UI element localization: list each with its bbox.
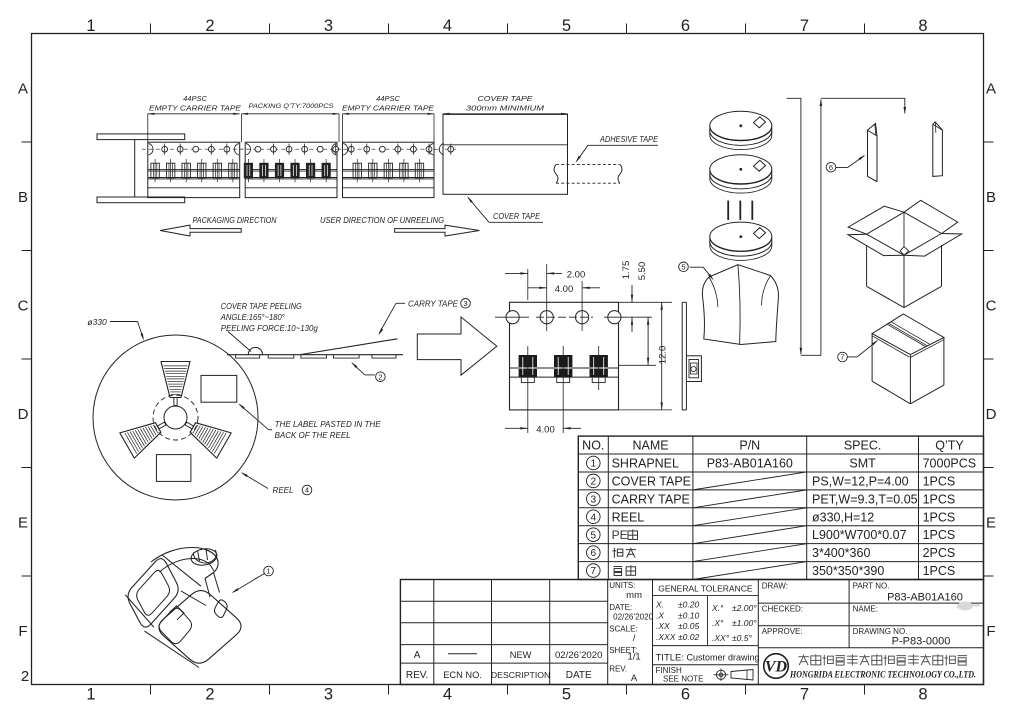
svg-text:E: E — [986, 515, 996, 532]
svg-text:4: 4 — [443, 17, 452, 35]
svg-text:REEL: REEL — [273, 486, 294, 495]
svg-text:1/1: 1/1 — [627, 652, 640, 663]
svg-text:CARRY TAPE: CARRY TAPE — [612, 492, 690, 506]
svg-text:Customer drawing: Customer drawing — [687, 653, 760, 664]
svg-text:4.00: 4.00 — [536, 424, 555, 435]
svg-text:NAME: NAME — [633, 439, 669, 453]
svg-text:THE LABEL PASTED IN THE: THE LABEL PASTED IN THE — [275, 420, 382, 429]
svg-text:SCALE:: SCALE: — [609, 624, 637, 633]
svg-text:EMPTY CARRIER TAPE: EMPTY CARRIER TAPE — [342, 104, 435, 113]
svg-text:PACKAGING DIRECTION: PACKAGING DIRECTION — [193, 216, 277, 225]
svg-text:5.50: 5.50 — [637, 262, 648, 281]
svg-text:REV.: REV. — [609, 665, 627, 674]
svg-text:ANGLE:165°~180°: ANGLE:165°~180° — [220, 313, 286, 322]
svg-text:12.0: 12.0 — [658, 346, 669, 365]
svg-text:PET,W=9.3,T=0.05: PET,W=9.3,T=0.05 — [812, 492, 918, 506]
svg-text:DATE: DATE — [566, 670, 592, 681]
svg-text:NEW: NEW — [510, 650, 532, 660]
svg-text:1: 1 — [86, 686, 95, 704]
svg-text:1PCS: 1PCS — [923, 492, 956, 506]
svg-text:3: 3 — [591, 494, 597, 505]
svg-text:1PCS: 1PCS — [923, 474, 956, 488]
svg-text:F: F — [986, 623, 995, 640]
svg-text:PART NO.: PART NO. — [853, 581, 890, 590]
svg-text:COVER TAPE: COVER TAPE — [478, 94, 534, 103]
svg-text:A: A — [986, 81, 996, 98]
svg-text:5: 5 — [591, 530, 597, 541]
svg-text:7: 7 — [800, 17, 809, 35]
svg-text:3: 3 — [324, 17, 333, 35]
svg-text:±0.20: ±0.20 — [678, 600, 699, 610]
svg-text:REEL: REEL — [612, 510, 645, 524]
svg-text:ADHESIVE TAPE: ADHESIVE TAPE — [599, 135, 659, 144]
svg-text:DRAW:: DRAW: — [762, 581, 788, 590]
svg-text:2: 2 — [21, 668, 29, 685]
svg-text:±0.5°: ±0.5° — [732, 633, 752, 643]
svg-text:7000PCS: 7000PCS — [923, 456, 977, 470]
svg-text:/: / — [633, 633, 636, 644]
svg-text:CHECKED:: CHECKED: — [762, 605, 803, 614]
svg-text:PACKING Q’TY:7000PCS: PACKING Q’TY:7000PCS — [249, 103, 334, 110]
svg-text:P/N: P/N — [739, 439, 760, 453]
svg-text:±0.10: ±0.10 — [678, 610, 699, 620]
svg-text:3: 3 — [324, 686, 333, 704]
svg-text:Q’TY: Q’TY — [935, 439, 964, 453]
svg-text:B: B — [18, 189, 28, 206]
svg-text:mm: mm — [626, 590, 642, 601]
svg-text:44PSC: 44PSC — [183, 94, 207, 103]
svg-text:DESCRIPTION: DESCRIPTION — [491, 670, 550, 680]
svg-text:6: 6 — [681, 686, 690, 704]
svg-text:HONGRIDA ELECTRONIC TECHNOLOGY: HONGRIDA ELECTRONIC TECHNOLOGY CO.,LTD. — [789, 671, 976, 681]
svg-text:±0.02: ±0.02 — [678, 632, 699, 642]
svg-text:6: 6 — [829, 163, 833, 172]
svg-text:TITLE:: TITLE: — [656, 653, 685, 664]
svg-text:3*400*360: 3*400*360 — [812, 546, 870, 560]
svg-text:.X°: .X° — [712, 618, 724, 628]
svg-text:PE: PE — [612, 528, 628, 542]
svg-text:5: 5 — [562, 17, 571, 35]
svg-text:±2.00°: ±2.00° — [732, 603, 757, 613]
svg-text:EMPTY CARRIER TAPE: EMPTY CARRIER TAPE — [149, 104, 242, 113]
svg-text:C: C — [986, 298, 997, 315]
svg-text:300mm MINIMIUM: 300mm MINIMIUM — [466, 104, 545, 113]
svg-text:D: D — [986, 406, 997, 423]
svg-text:1.75: 1.75 — [621, 261, 632, 280]
svg-text:6: 6 — [681, 17, 690, 35]
svg-text:USER DIRECTION OF UNREELING: USER DIRECTION OF UNREELING — [320, 216, 444, 225]
svg-text:±0.05: ±0.05 — [678, 621, 699, 631]
svg-text:P-P83-0000: P-P83-0000 — [892, 636, 951, 648]
svg-text:2: 2 — [378, 372, 382, 381]
svg-text:C: C — [18, 298, 29, 315]
svg-text:.XX: .XX — [656, 621, 670, 631]
svg-text:PEELING FORCE:10~130g: PEELING FORCE:10~130g — [221, 324, 319, 333]
svg-text:5: 5 — [681, 263, 685, 272]
svg-text:1: 1 — [86, 17, 95, 35]
svg-text:2.00: 2.00 — [567, 270, 586, 281]
svg-text:A: A — [414, 650, 421, 661]
svg-text:2: 2 — [205, 686, 214, 704]
svg-text:1: 1 — [266, 567, 270, 576]
svg-text:4.00: 4.00 — [555, 284, 574, 295]
svg-text:X.: X. — [655, 600, 664, 610]
svg-text:REV.: REV. — [406, 670, 428, 681]
svg-text:±1.00°: ±1.00° — [732, 618, 757, 628]
svg-text:ø330,H=12: ø330,H=12 — [812, 510, 874, 524]
svg-text:5: 5 — [562, 686, 571, 704]
svg-text:1PCS: 1PCS — [923, 510, 956, 524]
svg-text:2: 2 — [205, 17, 214, 35]
svg-text:02/26’2020: 02/26’2020 — [613, 612, 654, 621]
svg-text:7: 7 — [840, 353, 844, 362]
svg-text:NAME:: NAME: — [853, 605, 878, 614]
svg-text:F: F — [18, 623, 27, 640]
svg-text:SPEC.: SPEC. — [844, 439, 882, 453]
svg-text:UNITS:: UNITS: — [609, 581, 635, 590]
svg-text:SMT: SMT — [849, 456, 876, 470]
svg-text:A: A — [631, 673, 638, 684]
svg-text:P83-AB01A160: P83-AB01A160 — [707, 456, 793, 470]
svg-text:X.°: X.° — [711, 603, 724, 613]
svg-text:COVER TAPE PEELING: COVER TAPE PEELING — [221, 302, 302, 311]
svg-text:350*350*390: 350*350*390 — [812, 564, 884, 578]
svg-text:02/26’2020: 02/26’2020 — [555, 650, 602, 661]
svg-text:6: 6 — [591, 548, 597, 559]
svg-text:SHRAPNEL: SHRAPNEL — [612, 456, 679, 470]
svg-text:7: 7 — [800, 686, 809, 704]
svg-text:E: E — [18, 515, 28, 532]
svg-text:ECN NO.: ECN NO. — [443, 670, 482, 680]
svg-text:4: 4 — [305, 486, 309, 495]
svg-text:VD: VD — [765, 659, 788, 676]
svg-text:SEE NOTE: SEE NOTE — [663, 675, 703, 684]
svg-text:1: 1 — [591, 459, 597, 470]
svg-text:8: 8 — [918, 686, 927, 704]
svg-text:DATE:: DATE: — [609, 603, 632, 612]
svg-text:1PCS: 1PCS — [923, 564, 956, 578]
svg-text:BACK OF THE REEL: BACK OF THE REEL — [275, 431, 351, 440]
svg-text:L900*W700*0.07: L900*W700*0.07 — [812, 528, 907, 542]
svg-text:COVER TAPE: COVER TAPE — [493, 212, 541, 221]
svg-text:PS,W=12,P=4.00: PS,W=12,P=4.00 — [812, 474, 909, 488]
svg-text:4: 4 — [591, 512, 597, 523]
svg-text:2: 2 — [591, 477, 597, 488]
svg-text:2PCS: 2PCS — [923, 546, 956, 560]
svg-text:44PSC: 44PSC — [376, 94, 400, 103]
svg-text:.XXX: .XXX — [656, 632, 676, 642]
svg-text:P83-AB01A160: P83-AB01A160 — [887, 591, 963, 603]
svg-text:4: 4 — [443, 686, 452, 704]
svg-text:8: 8 — [918, 17, 927, 35]
svg-text:.X: .X — [656, 610, 664, 620]
svg-text:GENERAL TOLERANCE: GENERAL TOLERANCE — [658, 584, 753, 594]
svg-text:NO.: NO. — [582, 439, 604, 453]
svg-text:7: 7 — [591, 566, 597, 577]
svg-text:APPROVE:: APPROVE: — [762, 627, 803, 636]
svg-text:COVER TAPE: COVER TAPE — [612, 474, 691, 488]
svg-text:.XX°: .XX° — [712, 633, 730, 643]
svg-text:B: B — [986, 189, 996, 206]
svg-text:D: D — [18, 406, 29, 423]
svg-text:ø330: ø330 — [87, 317, 107, 327]
svg-text:1PCS: 1PCS — [923, 528, 956, 542]
svg-text:CARRY TAPE: CARRY TAPE — [408, 299, 459, 308]
svg-text:A: A — [18, 81, 28, 98]
svg-text:3: 3 — [463, 299, 467, 308]
